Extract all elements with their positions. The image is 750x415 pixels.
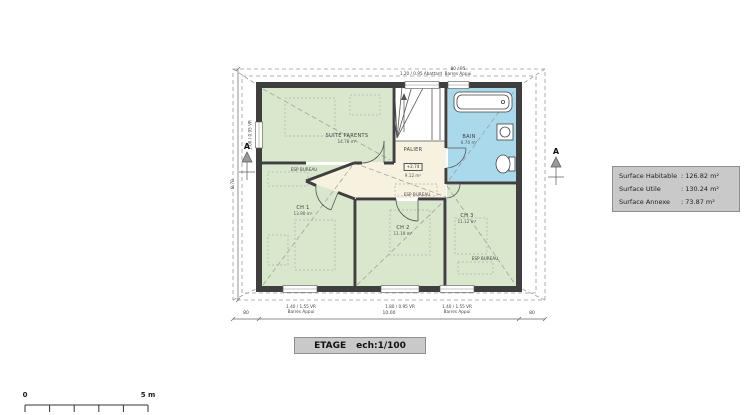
scale-five-label: 5 m [141,391,156,399]
title-block: ETAGE ech:1/100 [294,337,426,354]
dim-bottom-left: 80 [243,311,249,317]
room-label-palier: PALIER +2.74 9.12 m² [404,147,423,179]
surface-utile-label: Surface Utile [619,185,681,193]
room-area: 11.19 m² [393,231,412,236]
floor-level-badge: +2.74 [404,163,423,170]
table-row: Surface Annexe : 73.87 m² [619,198,733,206]
room-area: 14.78 m² [326,139,369,144]
table-row: Surface Habitable : 126.82 m² [619,172,733,180]
page-title: ETAGE [314,341,346,351]
room-label-ch3: CH 3 11.12 m² [457,213,476,225]
scale-zero-label: 0 [23,391,28,399]
floorplan-page: SUITE PARENTS 14.78 m² PALIER +2.74 9.12… [0,0,750,415]
room-area: 13.90 m² [293,211,312,216]
surface-utile-value: : 130.24 m² [681,185,733,193]
room-label-suite-parents: SUITE PARENTS 14.78 m² [326,133,369,145]
surface-table: Surface Habitable : 126.82 m² Surface Ut… [612,166,740,212]
dim-bottom-right: 80 [529,311,535,317]
bathtub-icon [454,92,512,112]
scale-bar [25,405,148,412]
surface-annexe-value: : 73.87 m² [681,198,733,206]
esp-bureau-label-ch3: ESP BUREAU [472,256,499,261]
surface-habitable-value: : 126.82 m² [681,172,733,180]
room-label-bain: BAIN 6.70 m² [461,134,477,146]
window-label-top-left: 1.20 / 0.95 Abattant [400,71,442,76]
room-area: 9.12 m² [404,173,423,178]
table-row: Surface Utile : 130.24 m² [619,185,733,193]
room-label-ch1: CH 1 13.90 m² [293,205,312,217]
room-label-ch2: CH 2 11.19 m² [393,225,412,237]
window-label-bottom-left: 1.40 / 1.55 VR Barres Appui [286,304,316,315]
window-label-bottom-mid: 1.80 / 0.95 VR [385,304,415,309]
toilet-icon [496,155,515,173]
esp-bureau-label-palier: ESP BUREAU [404,192,431,197]
window-label-bottom-right: 1.40 / 1.55 VR Barres Appui [442,304,472,315]
stairs [394,86,446,141]
scale-label: ech:1/100 [356,341,406,351]
sink-icon [497,124,513,140]
esp-bureau-label-ch1: ESP BUREAU [291,167,318,172]
section-mark-a-right: A [553,147,559,156]
surface-annexe-label: Surface Annexe [619,198,681,206]
dim-left: 8.70 [231,179,237,189]
surface-habitable-label: Surface Habitable [619,172,681,180]
window-label-top-right: 80 / 95 Barres Appui [445,66,472,77]
dim-bottom-center: 10.00 [383,311,396,317]
room-area: 11.12 m² [457,219,476,224]
section-mark-a-left: A [244,142,250,151]
room-area: 6.70 m² [461,140,477,145]
